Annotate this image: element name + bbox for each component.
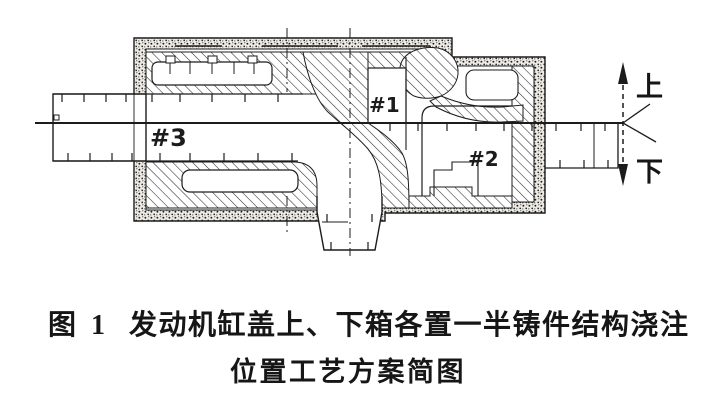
down-arrow-icon — [618, 164, 628, 186]
mold-section-drawing: 上 下 #3 #1 #2 — [0, 0, 724, 300]
port-bulb — [400, 48, 458, 99]
caption-text-line1: 发动机缸盖上、下箱各置一半铸件结构浇注 — [129, 310, 690, 341]
technical-drawing-area: 上 下 #3 #1 #2 — [0, 0, 724, 300]
figure-panel: 上 下 #3 #1 #2 图 1发动机缸盖上、下箱各置一半铸件结构浇注 位置工艺… — [0, 0, 724, 414]
up-label: 上 — [636, 72, 663, 102]
orientation-indicator: 上 下 — [618, 62, 663, 187]
figure-number: 图 1 — [48, 310, 109, 341]
region-label-1: #1 — [369, 93, 400, 117]
up-arrow-icon — [618, 62, 628, 84]
region-label-3: #3 — [150, 124, 187, 152]
region-label-2: #2 — [468, 147, 499, 171]
figure-caption-line1: 图 1发动机缸盖上、下箱各置一半铸件结构浇注 — [48, 303, 690, 343]
figure-caption-line2: 位置工艺方案简图 — [230, 350, 466, 389]
down-label: 下 — [636, 157, 663, 187]
